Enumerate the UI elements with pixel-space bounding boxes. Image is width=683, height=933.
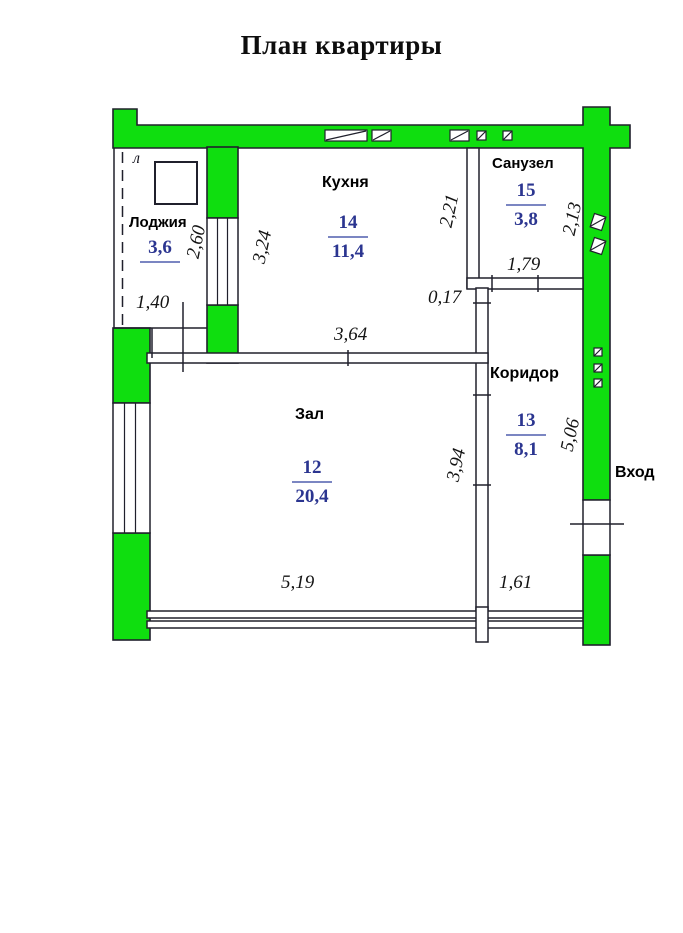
- entrance-label: Вход: [615, 464, 655, 482]
- corridor-number: 13: [506, 410, 546, 436]
- wall-hall-top: [147, 353, 488, 363]
- loggia-shaft-square: [155, 162, 197, 204]
- outer-wall-left-low: [113, 533, 150, 640]
- dim-loggia-width: 1,40: [136, 292, 169, 314]
- outer-wall-bottom-band-1: [147, 611, 583, 618]
- loggia-letter: л: [133, 150, 140, 168]
- kitchen-area: 11,4: [324, 238, 372, 263]
- vent-small-2: [594, 364, 602, 372]
- floor-plan-drawing: [0, 0, 683, 933]
- wall-loggia-kitchen-upper: [207, 147, 238, 218]
- vent-small-1: [594, 348, 602, 356]
- room-label-corridor: Коридор: [490, 365, 559, 383]
- vent-top-2: [372, 130, 391, 141]
- outer-wall-right-low: [583, 555, 610, 645]
- hall-area: 20,4: [288, 483, 336, 508]
- window-loggia-kitchen: [207, 218, 238, 305]
- kitchen-number: 14: [328, 212, 368, 238]
- wall-bottom-cross: [476, 607, 488, 642]
- room-label-loggia: Лоджия: [129, 214, 187, 231]
- window-hall-left: [113, 403, 150, 533]
- loggia-area: 3,6: [140, 237, 180, 263]
- dim-hall-width: 5,19: [281, 572, 314, 594]
- figure-kitchen: 14 11,4: [324, 212, 372, 263]
- page-title: План квартиры: [0, 30, 683, 61]
- dim-kitchen-width: 3,64: [334, 324, 367, 346]
- figure-loggia: 3,6: [136, 237, 184, 263]
- room-label-kitchen: Кухня: [322, 174, 369, 192]
- wall-corridor-hall: [476, 288, 488, 612]
- bathroom-number: 15: [506, 180, 546, 206]
- floor-plan-canvas: План квартиры л Лоджия Кухня Санузел Кор…: [0, 0, 683, 933]
- wall-bathroom-left: [467, 148, 479, 288]
- figure-hall: 12 20,4: [288, 457, 336, 508]
- room-label-hall: Зал: [295, 406, 324, 424]
- dim-wall-offset: 0,17: [428, 287, 461, 309]
- vent-top-3: [450, 130, 469, 141]
- vent-top-4: [477, 131, 486, 140]
- dim-corridor-width: 1,61: [499, 572, 532, 594]
- bathroom-area: 3,8: [502, 206, 550, 231]
- vent-small-3: [594, 379, 602, 387]
- figure-corridor: 13 8,1: [502, 410, 550, 461]
- vent-top-5: [503, 131, 512, 140]
- corridor-area: 8,1: [502, 436, 550, 461]
- outer-wall-bottom-band-2: [147, 621, 583, 628]
- vent-top-1: [325, 130, 367, 141]
- dim-bathroom-width: 1,79: [507, 254, 540, 276]
- room-label-bathroom: Санузел: [492, 155, 554, 172]
- outer-wall-left-mid: [113, 328, 150, 403]
- hall-number: 12: [292, 457, 332, 483]
- entrance-door-opening: [570, 500, 624, 555]
- figure-bathroom: 15 3,8: [502, 180, 550, 231]
